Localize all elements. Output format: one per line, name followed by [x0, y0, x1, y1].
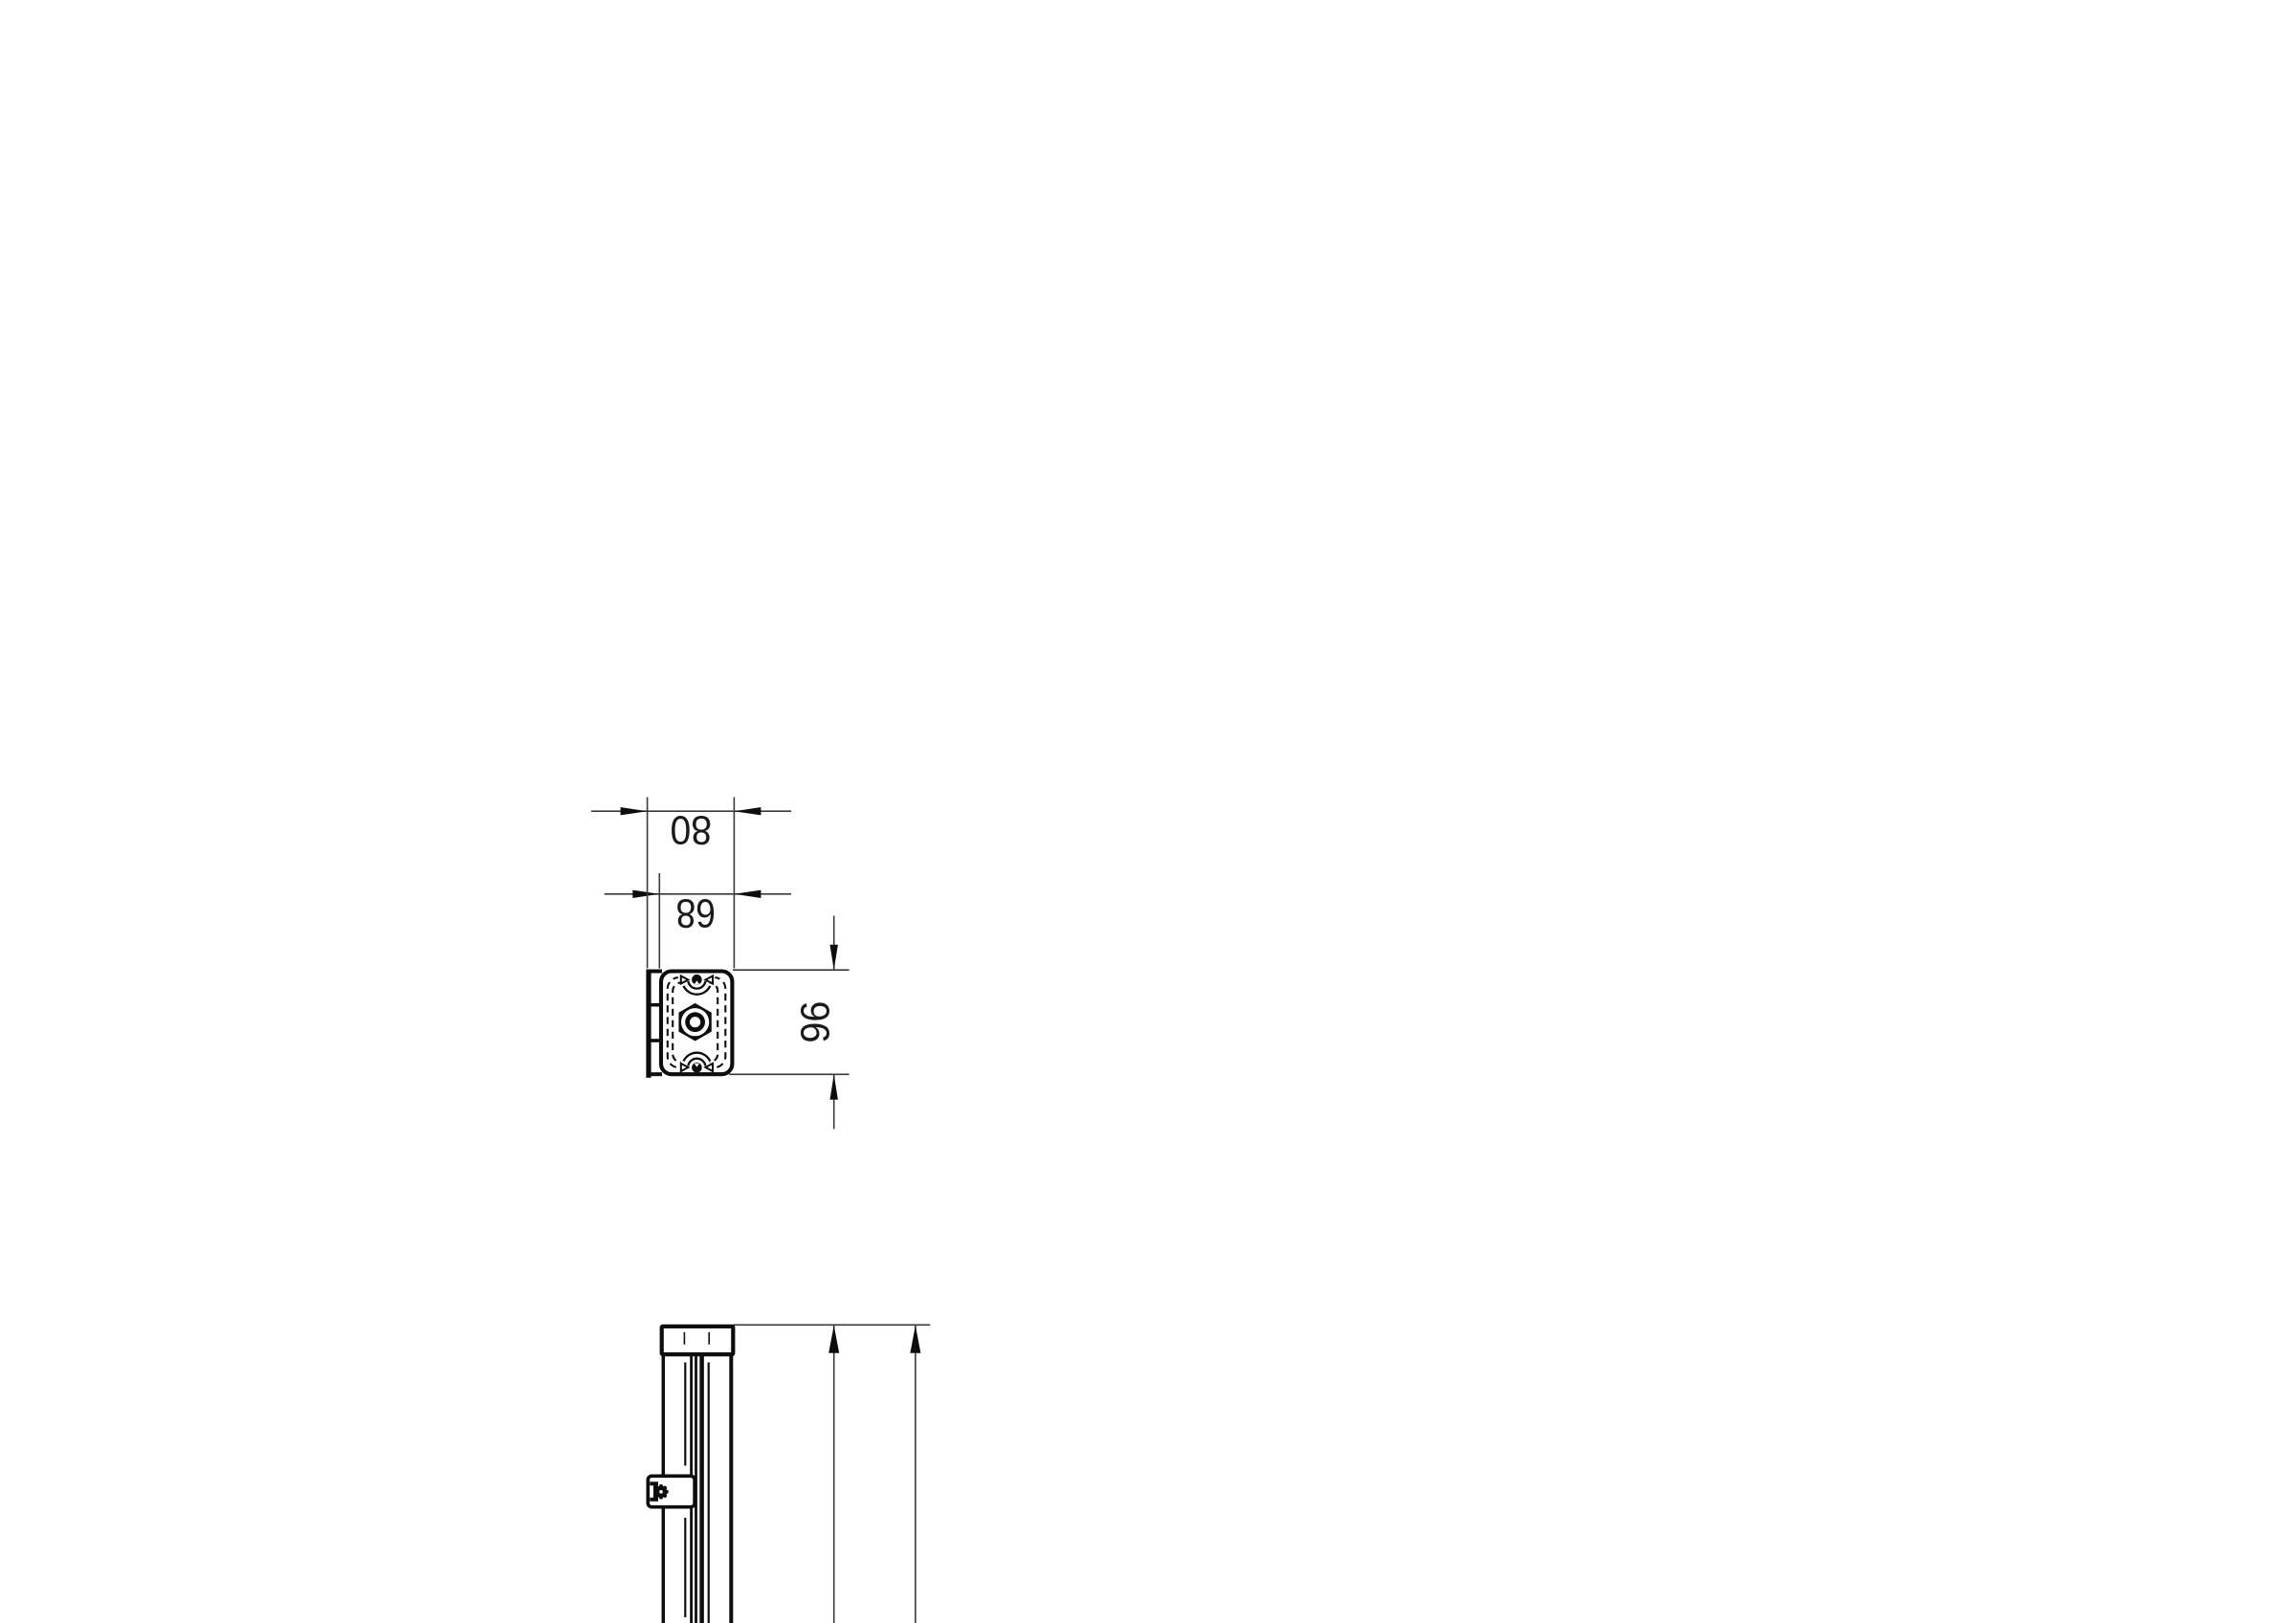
- svg-text:68: 68: [675, 889, 716, 934]
- svg-text:80: 80: [671, 807, 713, 852]
- svg-text:96: 96: [794, 1001, 839, 1043]
